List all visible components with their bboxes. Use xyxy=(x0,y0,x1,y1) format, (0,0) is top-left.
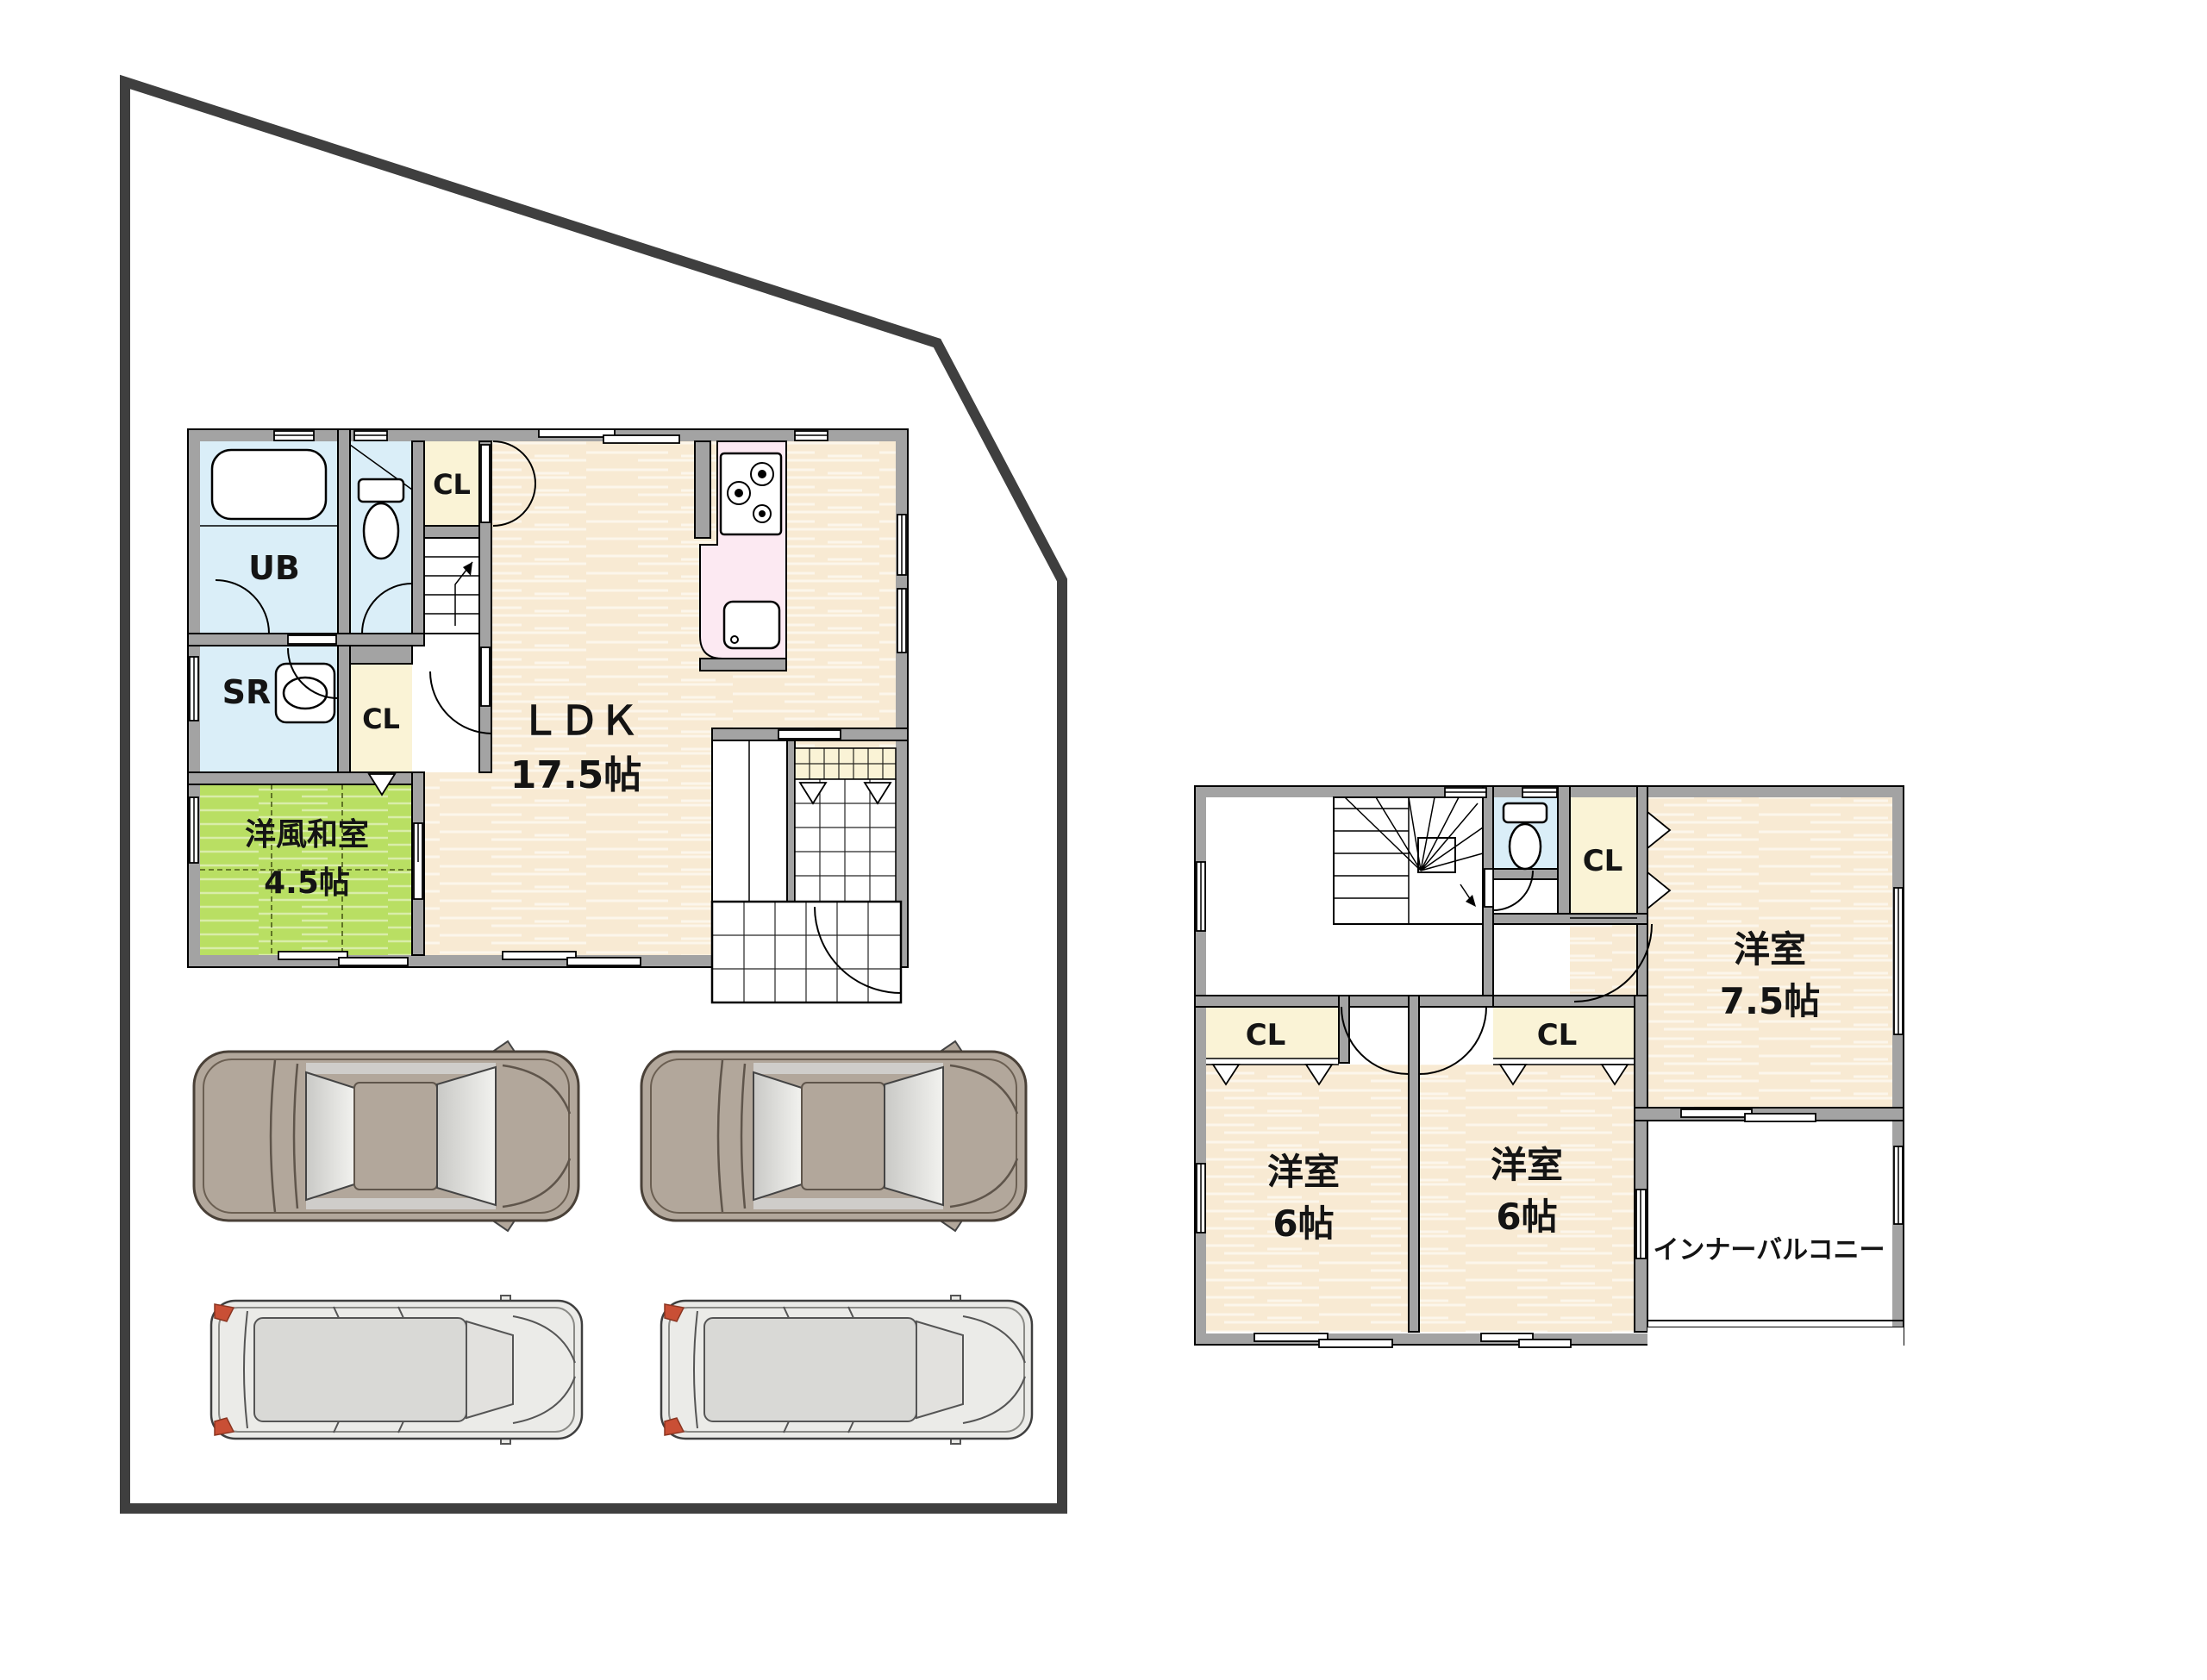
label-ldk-size: 17.5帖 xyxy=(510,753,642,797)
f2-room-6a xyxy=(1206,1065,1409,1332)
label-washitsu: 洋風和室 xyxy=(245,817,369,852)
entrance-hall-tiles xyxy=(795,779,896,902)
washbasin-icon xyxy=(276,664,334,722)
label-ub: UB xyxy=(248,549,300,587)
stairs-f1 xyxy=(424,538,479,634)
f2-inner-balcony xyxy=(1647,1121,1892,1321)
label-cl-b: CL xyxy=(362,703,400,735)
label-cl-a: CL xyxy=(433,468,471,501)
floor2-plan: CL 洋室 7.5帖 CL CL 洋室 6帖 洋室 6帖 インナーバルコニー xyxy=(1195,786,1904,1347)
kitchen-stub-wall xyxy=(695,441,710,538)
f2-vestibule xyxy=(1570,924,1647,996)
label-room6a: 洋室 xyxy=(1267,1151,1340,1193)
f1-kitchen xyxy=(695,441,786,671)
entrance-area xyxy=(712,728,908,1002)
hall-ldk-door-gap xyxy=(481,647,490,706)
label-room6a-size: 6帖 xyxy=(1272,1202,1334,1245)
label-inner-balcony: インナーバルコニー xyxy=(1653,1235,1885,1265)
toilet-door-leaf-f2 xyxy=(1485,869,1493,907)
bathtub-icon xyxy=(200,450,338,526)
label-cl-left: CL xyxy=(1246,1018,1286,1052)
car-minivan-1 xyxy=(211,1296,582,1444)
label-cl-mid: CL xyxy=(1537,1018,1578,1052)
sr-door-gap xyxy=(288,635,336,644)
car-sedan-1 xyxy=(194,1041,578,1231)
entrance-step-tiles xyxy=(795,748,896,779)
stove-icon xyxy=(721,453,781,534)
floor-plan-canvas: UB SR CL CL 洋風和室 4.5帖 ＬＤＫ 17.5帖 xyxy=(0,0,2207,1680)
car-sedan-2 xyxy=(641,1041,1026,1231)
sink-icon xyxy=(724,602,779,648)
label-ldk: ＬＤＫ xyxy=(520,697,639,744)
label-room75-size: 7.5帖 xyxy=(1720,980,1820,1022)
stairs-f2 xyxy=(1334,797,1483,924)
car-minivan-2 xyxy=(661,1296,1032,1444)
label-washitsu-size: 4.5帖 xyxy=(264,865,350,901)
label-cl-top: CL xyxy=(1583,844,1623,878)
washitsu-sliding-door xyxy=(414,823,422,899)
label-room6b-size: 6帖 xyxy=(1496,1196,1557,1238)
f1-ldk-extension xyxy=(424,772,491,955)
label-sr: SR xyxy=(222,673,272,711)
entrance-door-gap xyxy=(778,730,841,739)
label-room75: 洋室 xyxy=(1734,928,1806,971)
entrance-porch xyxy=(712,902,901,1002)
kitchen-cap-wall xyxy=(700,659,786,671)
label-room6b: 洋室 xyxy=(1491,1144,1563,1186)
floor1-plan: UB SR CL CL 洋風和室 4.5帖 ＬＤＫ 17.5帖 xyxy=(188,429,908,1002)
